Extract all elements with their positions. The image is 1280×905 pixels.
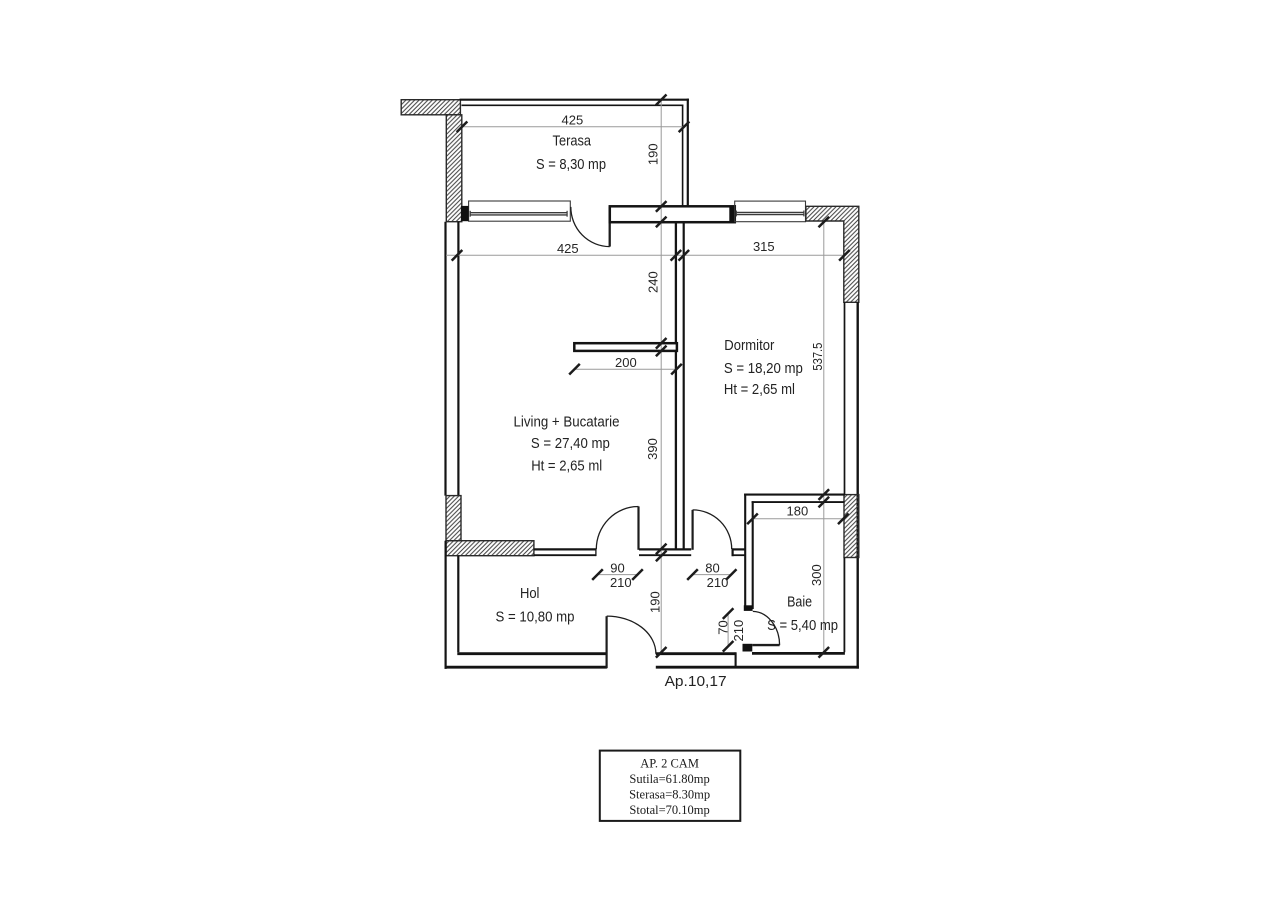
svg-text:Sutila=61.80mp: Sutila=61.80mp [629,772,709,786]
svg-text:S = 27,40 mp: S = 27,40 mp [531,436,610,452]
svg-text:80: 80 [705,561,719,576]
svg-text:AP. 2 CAM: AP. 2 CAM [640,757,699,771]
svg-text:190: 190 [646,143,661,165]
svg-text:Ap.10,17: Ap.10,17 [665,674,727,690]
svg-text:Hol: Hol [520,586,540,602]
svg-text:390: 390 [645,438,660,460]
svg-text:315: 315 [753,239,775,254]
svg-text:425: 425 [557,241,579,256]
svg-text:425: 425 [562,113,584,128]
svg-text:S = 5,40 mp: S = 5,40 mp [767,618,838,634]
svg-text:Sterasa=8.30mp: Sterasa=8.30mp [629,788,710,802]
svg-text:210: 210 [707,575,729,590]
svg-text:Dormitor: Dormitor [724,338,774,354]
svg-text:Stotal=70.10mp: Stotal=70.10mp [629,803,709,817]
svg-text:S = 10,80 mp: S = 10,80 mp [496,609,575,625]
svg-text:240: 240 [646,271,661,293]
svg-text:Living + Bucatarie: Living + Bucatarie [514,415,620,431]
svg-text:S = 18,20 mp: S = 18,20 mp [724,361,803,377]
svg-text:537.5: 537.5 [810,343,825,371]
svg-text:300: 300 [809,564,824,586]
svg-text:210: 210 [610,575,632,590]
svg-text:Ht = 2,65 ml: Ht = 2,65 ml [531,458,602,474]
svg-text:S = 8,30 mp: S = 8,30 mp [536,157,606,173]
svg-text:180: 180 [787,503,809,518]
svg-text:190: 190 [647,591,662,613]
svg-text:Terasa: Terasa [553,134,592,150]
svg-text:200: 200 [615,355,637,370]
svg-text:90: 90 [610,561,624,576]
svg-text:Ht = 2,65 ml: Ht = 2,65 ml [724,382,795,398]
svg-text:70: 70 [716,620,731,634]
svg-text:Baie: Baie [787,595,812,611]
svg-text:210: 210 [731,620,746,642]
